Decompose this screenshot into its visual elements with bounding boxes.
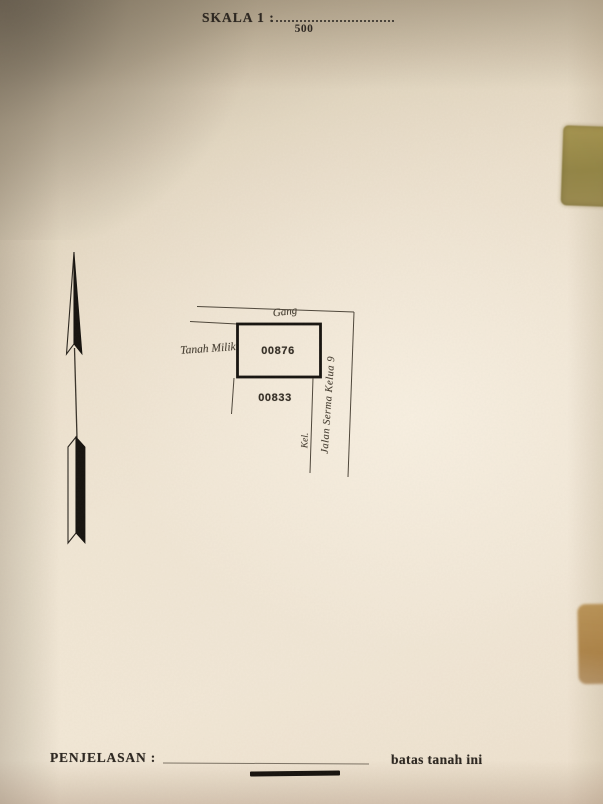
parcel-00833-west-line (232, 378, 235, 414)
parcel-number-adjacent: 00833 (252, 392, 298, 404)
kelurahan-abbrev-label: Kel. (300, 420, 314, 460)
legend-boundary-description: batas tanah ini (391, 752, 483, 768)
parcel-sketch-drawing (0, 0, 603, 804)
north-arrow-icon (67, 252, 86, 543)
alley-south-line-segment (190, 322, 237, 325)
legend-title: PENJELASAN : (50, 750, 156, 766)
parcel-number-main: 00876 (255, 345, 301, 357)
street-east-line (348, 312, 354, 477)
scanned-land-document: SKALA 1 : 500 Gang Tanah Milik 00876 008… (0, 0, 603, 804)
